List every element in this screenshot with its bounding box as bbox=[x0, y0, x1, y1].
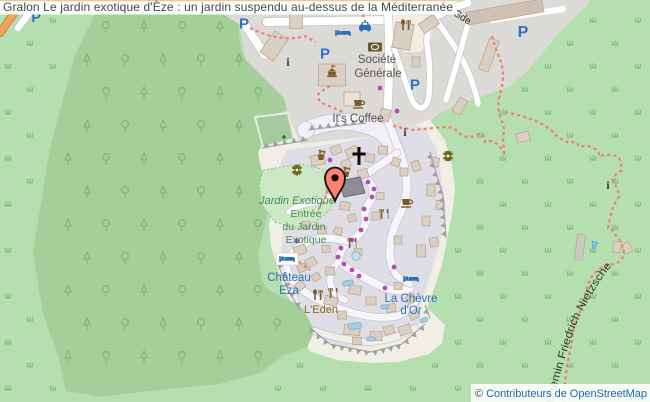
svg-text:Jardin Exotique: Jardin Exotique bbox=[258, 195, 335, 207]
svg-text:Générale: Générale bbox=[354, 68, 401, 80]
svg-text:La Chèvre: La Chèvre bbox=[384, 293, 437, 305]
svg-text:P: P bbox=[518, 24, 529, 41]
svg-text:Exotique: Exotique bbox=[286, 234, 327, 246]
svg-text:Gralon Le jardin exotique d'Èz: Gralon Le jardin exotique d'Èze : un jar… bbox=[3, 0, 453, 14]
svg-text:d'Or: d'Or bbox=[400, 305, 422, 317]
svg-text:© Contributeurs de OpenStreetM: © Contributeurs de OpenStreetMap bbox=[475, 388, 647, 400]
svg-text:P: P bbox=[239, 15, 249, 32]
svg-text:Société: Société bbox=[358, 54, 396, 66]
svg-text:Entrée: Entrée bbox=[291, 208, 322, 220]
svg-text:du Jardin: du Jardin bbox=[282, 221, 325, 233]
svg-text:P: P bbox=[320, 45, 330, 62]
svg-text:P: P bbox=[410, 76, 420, 93]
svg-text:L'Eden: L'Eden bbox=[304, 304, 338, 316]
svg-text:Château: Château bbox=[267, 272, 310, 284]
svg-text:It's Coffee: It's Coffee bbox=[332, 113, 383, 125]
svg-text:Eza: Eza bbox=[279, 285, 299, 297]
